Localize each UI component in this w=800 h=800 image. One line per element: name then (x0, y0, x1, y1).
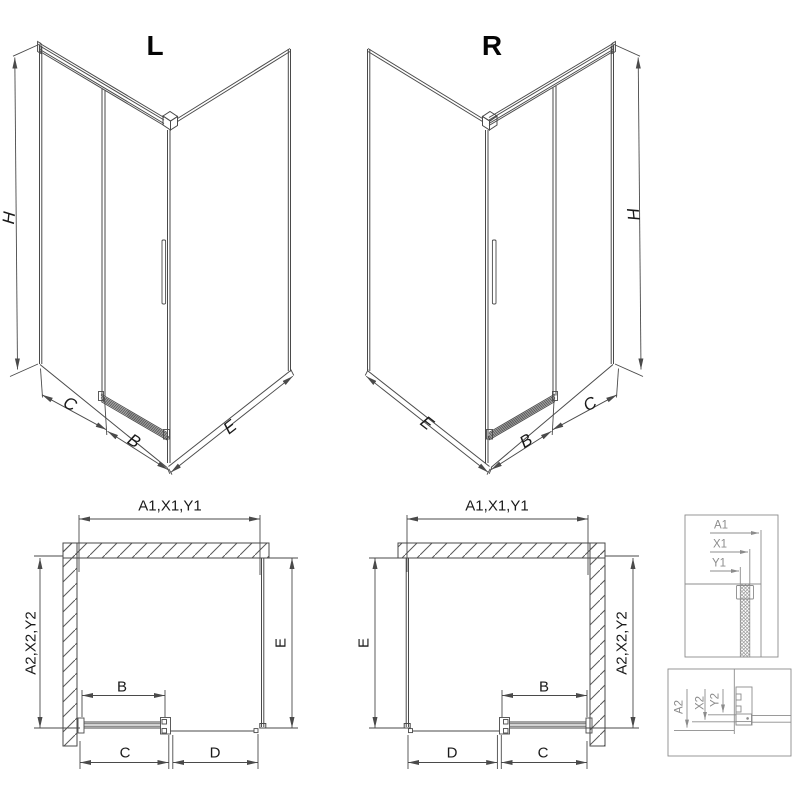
left-plan-view (34, 515, 298, 769)
glass-section-strip (740, 584, 750, 657)
detail-ref-x2: X2 (695, 696, 707, 710)
wall-hatch-right (590, 543, 605, 746)
dim-label-h-left: H (0, 211, 18, 225)
side-glass-panel (404, 558, 410, 728)
wall-hatch-top (398, 543, 605, 558)
detail-ref-a2: A2 (674, 700, 686, 714)
door-handle (162, 240, 166, 304)
detail-ref-y1: Y1 (712, 558, 726, 570)
wall-hatch-left (63, 543, 77, 746)
corner-cap (163, 112, 178, 131)
plan-left-width-refs: A1,X1,Y1 (138, 499, 201, 514)
top-track (38, 42, 164, 126)
plan-right-width-refs: A1,X1,Y1 (465, 499, 528, 514)
corner-post (168, 130, 171, 463)
plan-right-dim-d: D (447, 746, 458, 761)
plan-left-dim-c: C (120, 746, 131, 761)
door-handle (492, 240, 496, 304)
detail-ref-a1: A1 (714, 520, 728, 532)
plan-right-dim-c: C (538, 746, 549, 761)
corner-cap (483, 112, 498, 131)
plan-right-dim-e: E (357, 638, 372, 648)
top-track (489, 42, 615, 126)
detail-bottom-right (668, 669, 791, 756)
side-wall-panel (368, 49, 490, 467)
plan-right-depth-refs: A2,X2,Y2 (615, 611, 630, 674)
plan-left-dim-d: D (210, 746, 221, 761)
dim-label-h-right: H (624, 207, 642, 221)
plan-right-dim-b: B (539, 680, 549, 695)
plan-left-dim-b: B (117, 680, 127, 695)
corner-post (486, 130, 489, 463)
dim-lines-left-3d (10, 44, 294, 475)
bottom-rail-profile (736, 687, 791, 725)
left-3d-view (10, 42, 294, 475)
sliding-door-plan (409, 718, 593, 735)
plan-left-dim-e: E (274, 638, 289, 648)
side-glass-panel (260, 558, 266, 728)
technical-drawing-sheet: L R H C B E E B C H A1,X1,Y1 A2,X2,Y2 E … (0, 0, 800, 800)
left-view-title: L (146, 32, 163, 60)
right-plan-view (369, 515, 639, 769)
detail-top-right (685, 515, 778, 657)
wall-hatch-top (63, 543, 269, 558)
detail-ref-x1: X1 (713, 539, 727, 551)
plan-left-depth-refs: A2,X2,Y2 (24, 611, 39, 674)
side-wall-panel (169, 49, 291, 467)
detail-ref-y2: Y2 (710, 693, 722, 707)
right-3d-view (365, 42, 643, 475)
right-view-title: R (482, 32, 502, 60)
sliding-door-plan (78, 718, 258, 735)
